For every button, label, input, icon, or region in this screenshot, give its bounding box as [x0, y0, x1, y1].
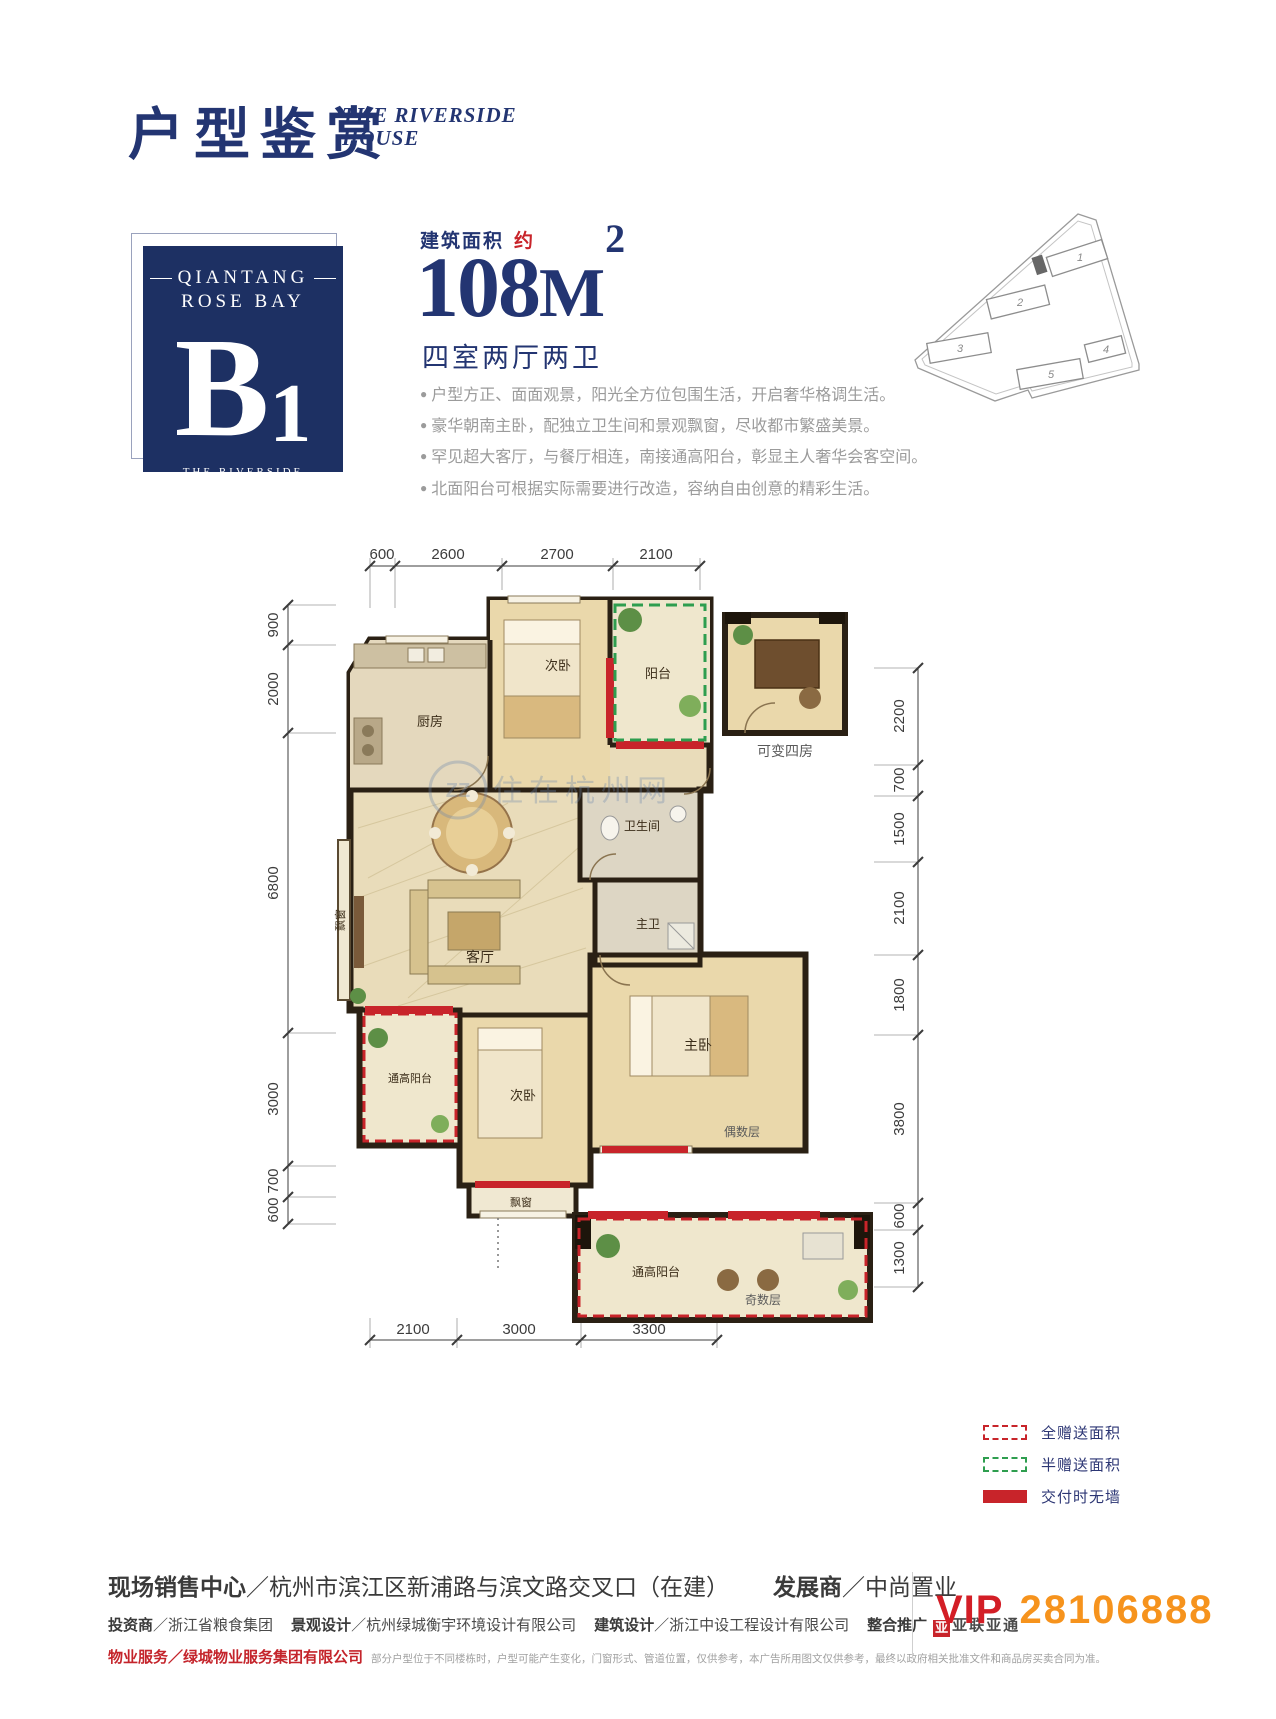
sofa-side [410, 890, 428, 974]
feature-item: ●户型方正、面面观景，阳光全方位包围生活，开启奢华格调生活。 [420, 380, 920, 411]
dim-right-2100: 2100 [891, 891, 908, 924]
sofa-front [428, 966, 520, 984]
dim-labels-left: 900 2000 6800 3000 700 600 [265, 612, 282, 1222]
unit-card-caption-line2: HOUSE [143, 480, 343, 497]
unit-card-caption-line1: THE RIVERSIDE [143, 464, 343, 481]
vip-phone-number: 28106888 [1019, 1588, 1213, 1632]
feature-item: ●豪华朝南主卧，配独立卫生间和景观飘窗，尽收都市繁盛美景。 [420, 411, 920, 442]
landscape-design-name: 杭州绿城衡宇环境设计有限公司 [366, 1617, 576, 1634]
plant [679, 695, 701, 717]
dim-left-6800: 6800 [265, 866, 282, 899]
area-unit: M [539, 255, 603, 332]
separator: ／ [654, 1617, 669, 1634]
page-subtitle-line1: THE RIVERSIDE [342, 104, 517, 127]
page-subtitle: THE RIVERSIDE HOUSE [342, 104, 517, 150]
label-bay-bottom: 飘窗 [510, 1195, 532, 1209]
bed-throw [504, 696, 580, 738]
disclaimer-text: 部分户型位于不同楼栋时，户型可能产生变化，门窗形式、管道位置，仅供参考，本广告所… [371, 1653, 1106, 1665]
bullet-icon: ● [420, 418, 427, 432]
label-tall-balcony: 通高阳台 [388, 1071, 432, 1085]
sofa-back [428, 880, 520, 898]
label-master-bedroom: 主卧 [684, 1037, 712, 1053]
label-bedroom-bottom: 次卧 [510, 1088, 536, 1103]
unit-card-caption: THE RIVERSIDE HOUSE [143, 464, 343, 497]
unit-code: B1 [143, 316, 343, 458]
burner [362, 725, 374, 737]
watermark-logo-text: ZZ [446, 780, 470, 802]
label-tall-balcony-odd: 通高阳台 [632, 1264, 680, 1279]
dim-right-700: 700 [891, 767, 908, 792]
architecture-design-label: 建筑设计 [594, 1617, 654, 1634]
area-sup: 2 [605, 216, 623, 261]
room-layout: 四室两厅两卫 [422, 336, 602, 375]
dim-left-2000: 2000 [265, 672, 282, 705]
sales-center-label: 现场销售中心 [108, 1574, 246, 1600]
developer-label: 发展商 [773, 1574, 842, 1600]
feature-text: 豪华朝南主卧，配独立卫生间和景观飘窗，尽收都市繁盛美景。 [431, 418, 879, 435]
building-4-number: 4 [1103, 344, 1109, 356]
dim-top-2600: 2600 [431, 546, 464, 563]
tv-cabinet [354, 896, 364, 968]
sales-center-address: 杭州市滨江区新浦路与滨文路交叉口（在建） [269, 1574, 729, 1600]
separator: ／ [168, 1649, 183, 1666]
label-bedroom-top: 次卧 [545, 658, 571, 673]
property-service-name: 绿城物业服务集团有限公司 [183, 1649, 363, 1666]
dim-left-3000: 3000 [265, 1082, 282, 1115]
legend-row: 交付时无墙 [983, 1486, 1121, 1507]
promotion-label: 整合推广 [867, 1617, 927, 1634]
footer-divider [912, 1572, 913, 1658]
feature-item: ●北面阳台可根据实际需要进行改造，容纳自由创意的精彩生活。 [420, 474, 920, 505]
plant [618, 608, 642, 632]
project-name-line1: QIANTANG [178, 267, 309, 288]
label-odd-floors: 奇数层 [745, 1292, 781, 1307]
separator: ／ [246, 1574, 269, 1600]
investor-name: 浙江省粮食集团 [168, 1617, 273, 1634]
building-1-number: 1 [1077, 252, 1083, 264]
stove [354, 718, 382, 764]
wall-pier [725, 612, 751, 624]
label-convertible-room: 可变四房 [757, 743, 813, 759]
site-buildings [927, 240, 1126, 390]
table [803, 1233, 843, 1259]
architecture-design-name: 浙江中设工程设计有限公司 [669, 1617, 849, 1634]
legend-row: 半赠送面积 [983, 1454, 1121, 1475]
plan-legend: 全赠送面积 半赠送面积 交付时无墙 [983, 1422, 1121, 1518]
separator: ／ [842, 1574, 865, 1600]
feature-text: 罕见超大客厅，与餐厅相连，南接通高阳台，彰显主人奢华会客空间。 [431, 449, 927, 466]
unit-location-marker [1031, 255, 1047, 276]
dim-left-900: 900 [265, 612, 282, 637]
plant [368, 1028, 388, 1048]
site-building-numbers: 1 2 3 4 5 [957, 252, 1109, 381]
dim-right-3800: 3800 [891, 1102, 908, 1135]
vip-hotline: VIP28106888 [936, 1588, 1213, 1633]
legend-green-dashed-swatch [983, 1457, 1027, 1472]
bullet-icon: ● [420, 449, 427, 463]
feature-list: ●户型方正、面面观景，阳光全方位包围生活，开启奢华格调生活。 ●豪华朝南主卧，配… [420, 380, 920, 505]
unit-card: QIANTANG ROSE BAY B1 THE RIVERSIDE HOUSE [131, 233, 347, 475]
burner [362, 744, 374, 756]
sink [408, 648, 424, 662]
plant [350, 988, 366, 1004]
decorative-dash [150, 278, 172, 279]
dim-top-2700: 2700 [540, 546, 573, 563]
footer-line2: 投资商／浙江省粮食集团景观设计／杭州绿城衡宇环境设计有限公司建筑设计／浙江中设工… [108, 1614, 908, 1637]
bed-pillows [630, 996, 652, 1076]
feature-text: 户型方正、面面观景，阳光全方位包围生活，开启奢华格调生活。 [431, 387, 895, 404]
desk [755, 640, 819, 688]
plant [838, 1280, 858, 1300]
label-kitchen: 厨房 [417, 714, 443, 729]
chair [717, 1269, 739, 1291]
watermark-text: 住在杭州网 [493, 775, 673, 808]
feature-item: ●罕见超大客厅，与餐厅相连，南接通高阳台，彰显主人奢华会客空间。 [420, 442, 920, 473]
label-even-floors: 偶数层 [724, 1124, 760, 1139]
area-number: 108 [416, 239, 539, 335]
dim-bottom-2100: 2100 [396, 1321, 429, 1338]
landscape-design-label: 景观设计 [291, 1617, 351, 1634]
building-2-number: 2 [1016, 297, 1023, 309]
floor-plan: 600 2600 2700 2100 900 2000 6800 [258, 528, 1018, 1408]
plate [503, 827, 515, 839]
chair [799, 687, 821, 709]
unit-letter: B [175, 308, 270, 466]
legend-red-dashed-swatch [983, 1425, 1027, 1440]
dim-top-2100: 2100 [639, 546, 672, 563]
built-area-value: 108M2 [416, 244, 621, 330]
legend-row: 全赠送面积 [983, 1422, 1121, 1443]
separator: ／ [153, 1617, 168, 1634]
footer: 现场销售中心／杭州市滨江区新浦路与滨文路交叉口（在建）发展商／中尚置业 投资商／… [108, 1568, 908, 1667]
investor-label: 投资商 [108, 1617, 153, 1634]
convertible-room [725, 612, 845, 733]
label-bathroom: 卫生间 [624, 819, 660, 833]
label-balcony-top: 阳台 [645, 666, 671, 681]
dim-labels-top: 600 2600 2700 2100 [369, 546, 672, 563]
property-service-label: 物业服务 [108, 1649, 168, 1666]
decorative-dash [314, 278, 336, 279]
plant [431, 1115, 449, 1133]
coffee-table [448, 912, 500, 950]
bed-pillows [504, 620, 580, 644]
dim-left-600: 600 [265, 1197, 282, 1222]
dim-right-600: 600 [891, 1203, 908, 1228]
dim-chain-left [283, 600, 336, 1229]
wall-pier [819, 612, 845, 624]
project-name-line2: ROSE BAY [181, 291, 305, 312]
odd-floor-balcony-shape [575, 1215, 870, 1320]
basin [670, 806, 686, 822]
dim-labels-right: 2200 700 1500 2100 1800 3800 600 1300 [891, 699, 908, 1274]
dim-right-2200: 2200 [891, 699, 908, 732]
plate [466, 864, 478, 876]
legend-label-no-wall: 交付时无墙 [1041, 1486, 1121, 1507]
bed-pillows [478, 1028, 542, 1050]
bed-throw [710, 996, 748, 1076]
project-name: QIANTANG ROSE BAY [143, 266, 343, 314]
dim-bottom-3000: 3000 [502, 1321, 535, 1338]
bullet-icon: ● [420, 387, 427, 401]
building-5-number: 5 [1048, 369, 1055, 381]
building-3-number: 3 [957, 343, 964, 355]
dim-labels-bottom: 2100 3000 3300 [396, 1321, 665, 1338]
footer-line3: 物业服务／绿城物业服务集团有限公司部分户型位于不同楼栋时，户型可能产生变化，门窗… [108, 1646, 908, 1667]
sink [428, 648, 444, 662]
dim-left-700: 700 [265, 1168, 282, 1193]
label-bay-left: 飘窗 [333, 909, 347, 931]
label-master-bath: 主卫 [636, 917, 660, 931]
toilet [601, 816, 619, 840]
plant [733, 625, 753, 645]
footer-line1: 现场销售中心／杭州市滨江区新浦路与滨文路交叉口（在建）发展商／中尚置业 [108, 1568, 908, 1602]
unit-number: 1 [269, 367, 311, 460]
legend-label-half-gift: 半赠送面积 [1041, 1454, 1121, 1475]
dim-chain-right [874, 663, 923, 1292]
dim-right-1800: 1800 [891, 978, 908, 1011]
separator: ／ [351, 1617, 366, 1634]
vip-label: VIP [936, 1588, 1003, 1632]
plate [429, 827, 441, 839]
chair [757, 1269, 779, 1291]
dim-bottom-3300: 3300 [632, 1321, 665, 1338]
brochure-page: 户型鉴赏 THE RIVERSIDE HOUSE QIANTANG ROSE B… [0, 0, 1276, 1719]
dim-right-1500: 1500 [891, 812, 908, 845]
unit-card-panel: QIANTANG ROSE BAY B1 THE RIVERSIDE HOUSE [143, 246, 343, 472]
feature-text: 北面阳台可根据实际需要进行改造，容纳自由创意的精彩生活。 [431, 481, 879, 498]
page-subtitle-line2: HOUSE [342, 127, 517, 150]
odd-floor-balcony [498, 1215, 870, 1320]
site-map: 1 2 3 4 5 [900, 192, 1235, 422]
legend-red-solid-swatch [983, 1490, 1027, 1503]
legend-label-full-gift: 全赠送面积 [1041, 1422, 1121, 1443]
bullet-icon: ● [420, 481, 427, 495]
label-living: 客厅 [466, 949, 494, 965]
property-service: 物业服务／绿城物业服务集团有限公司 [108, 1649, 363, 1666]
plant [596, 1234, 620, 1258]
dim-top-600: 600 [369, 546, 394, 563]
dim-right-1300: 1300 [891, 1241, 908, 1274]
